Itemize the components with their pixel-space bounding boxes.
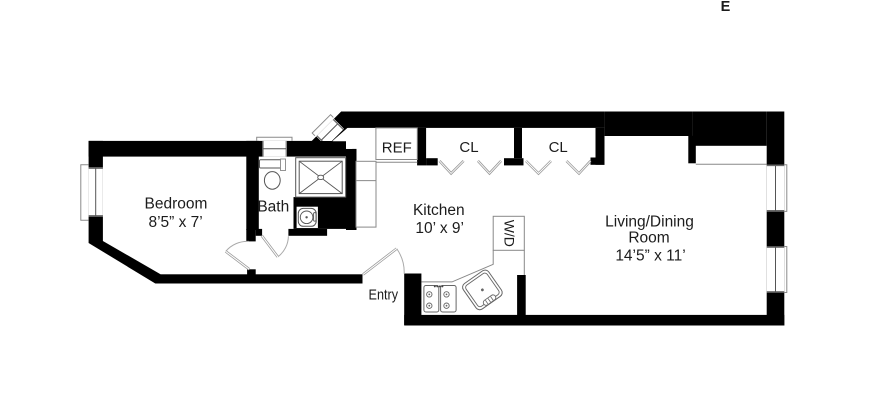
svg-text:CL: CL <box>459 139 478 156</box>
svg-text:14’5” x 11’: 14’5” x 11’ <box>615 248 685 265</box>
svg-text:REF: REF <box>382 140 412 157</box>
svg-text:Bedroom: Bedroom <box>145 195 208 212</box>
svg-text:8’5” x 7’: 8’5” x 7’ <box>148 214 202 231</box>
svg-text:CL: CL <box>549 139 568 156</box>
svg-text:Room: Room <box>628 230 669 247</box>
svg-text:W/D: W/D <box>502 220 518 247</box>
svg-text:Bath: Bath <box>257 198 289 215</box>
svg-text:10’ x 9’: 10’ x 9’ <box>415 220 464 237</box>
svg-text:Kitchen: Kitchen <box>413 202 465 219</box>
svg-text:Entry: Entry <box>369 288 399 304</box>
svg-text:E: E <box>721 0 731 15</box>
svg-text:Living/Dining: Living/Dining <box>605 213 694 230</box>
